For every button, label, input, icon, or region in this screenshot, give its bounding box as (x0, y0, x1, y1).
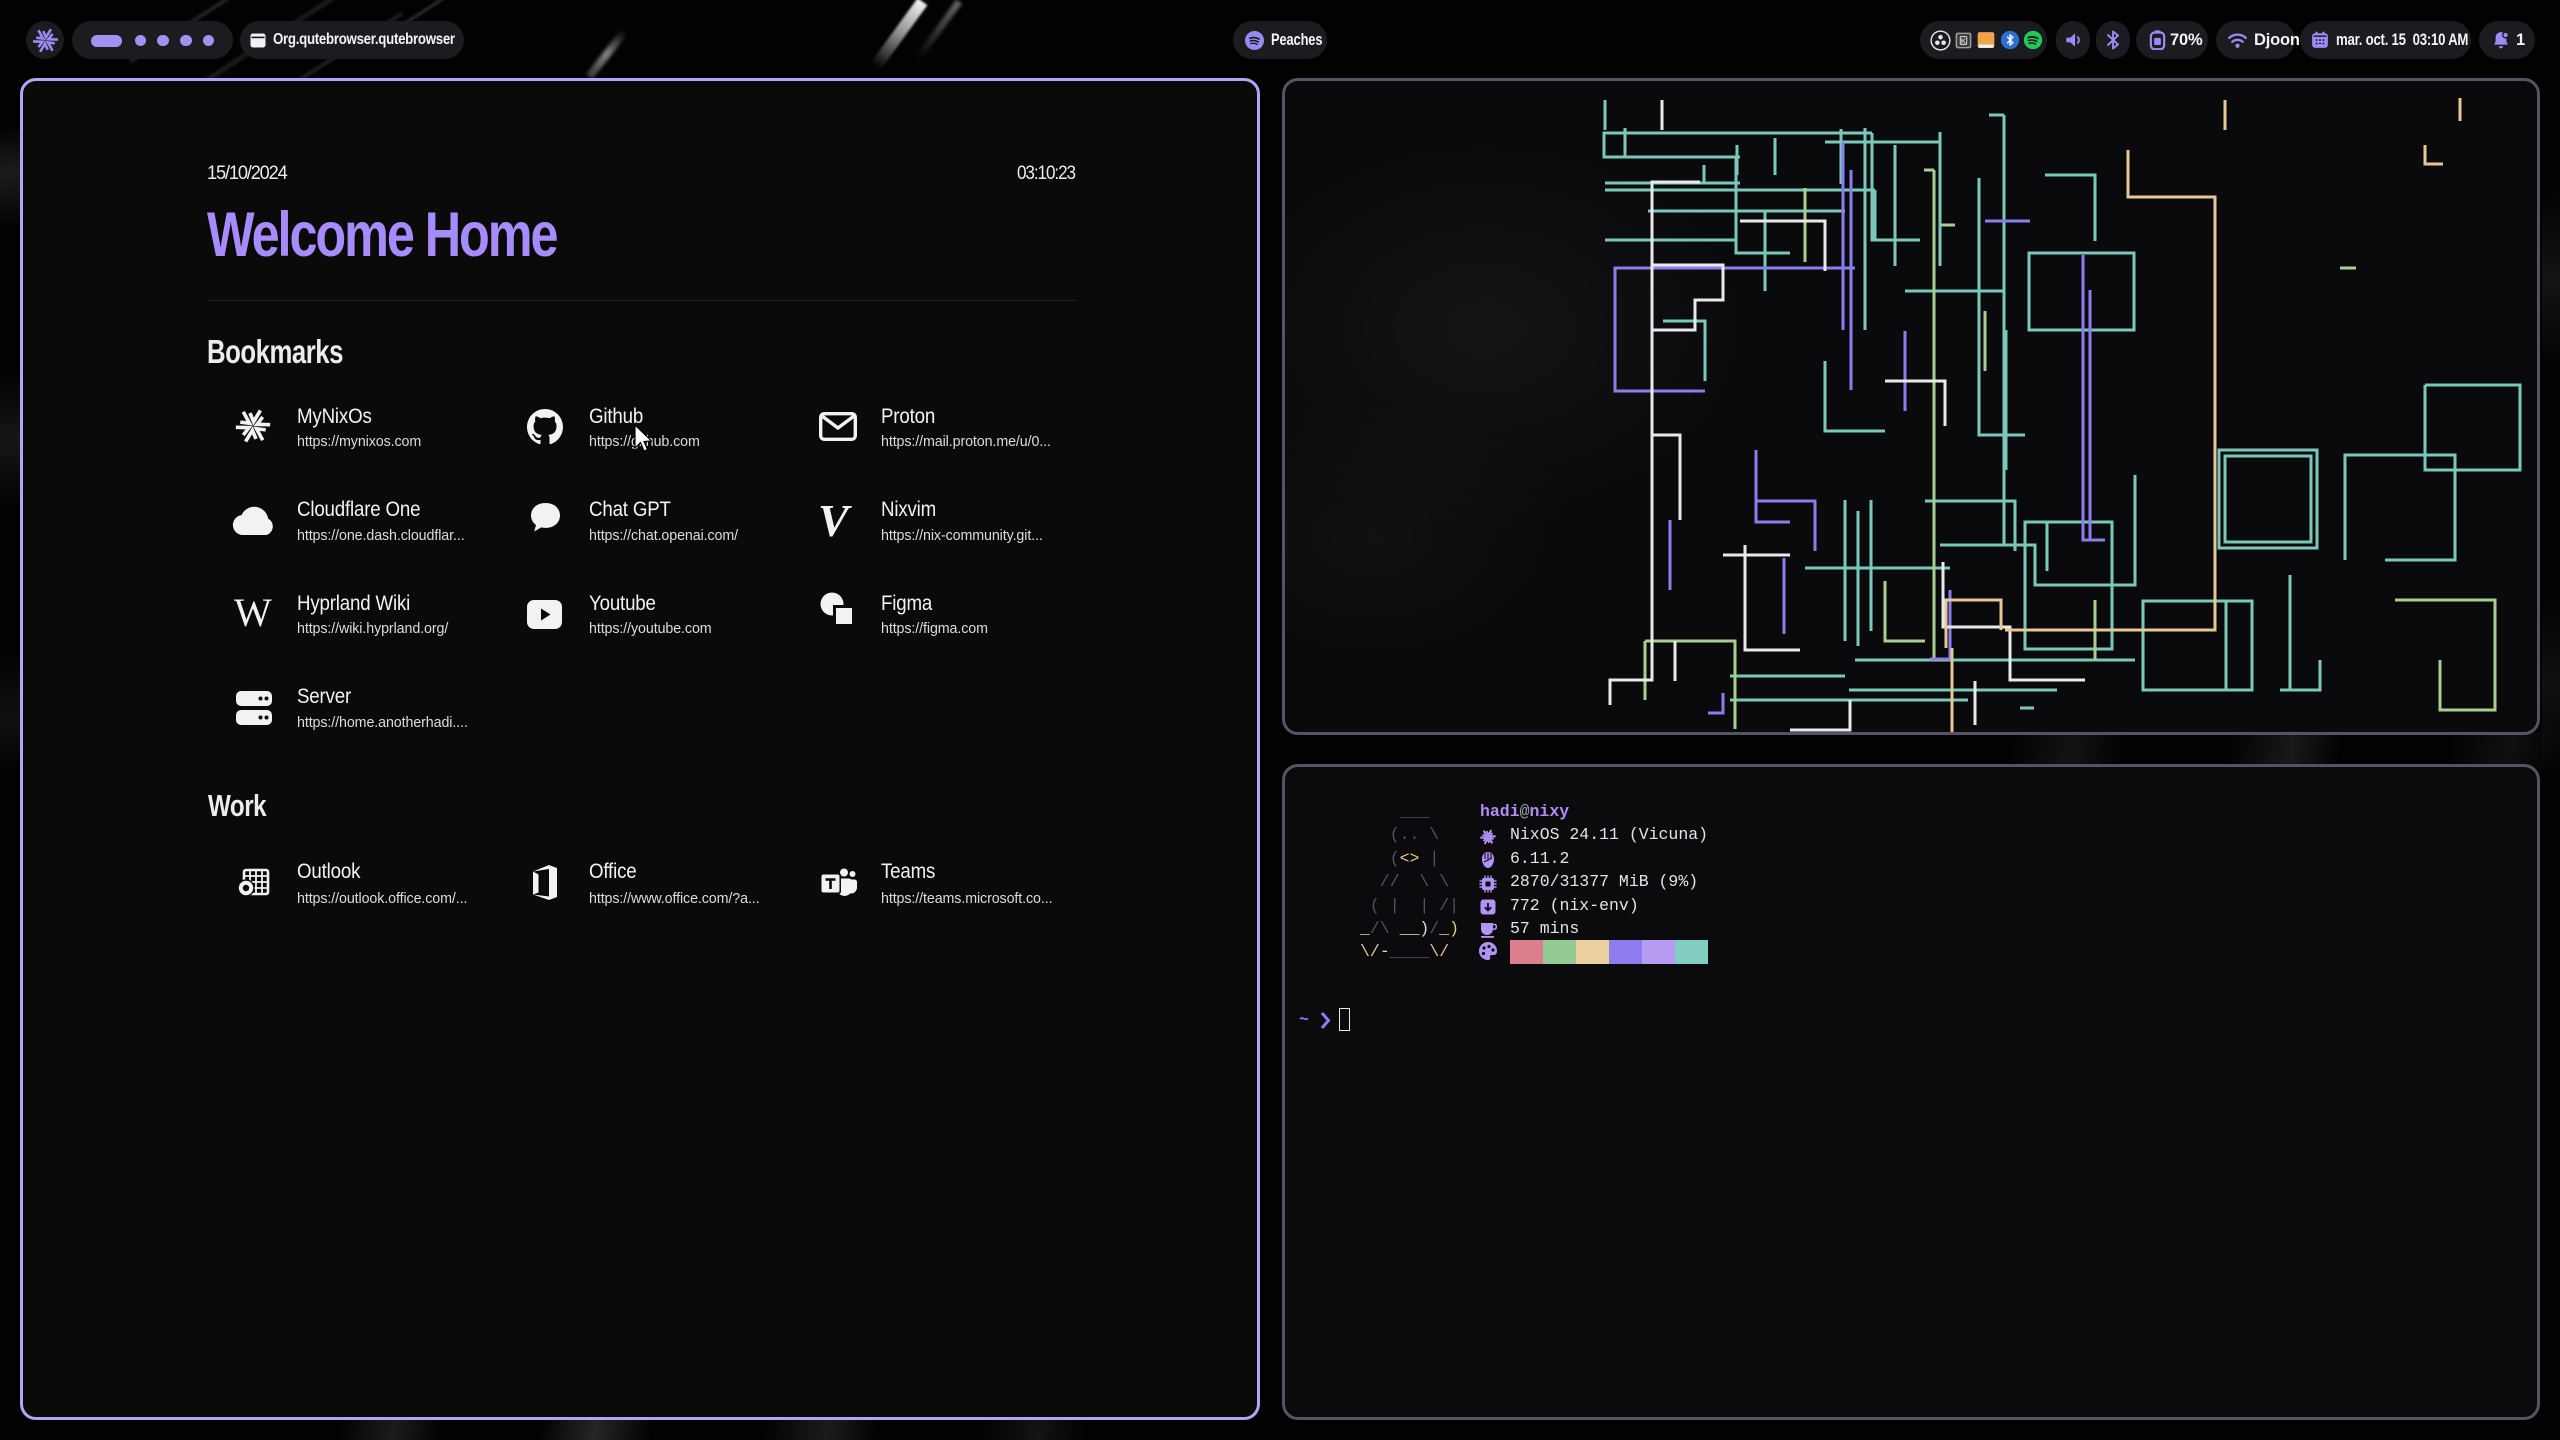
svg-text:W: W (234, 592, 272, 634)
svg-text:V: V (818, 498, 852, 544)
svg-text:K: K (1961, 37, 1967, 45)
